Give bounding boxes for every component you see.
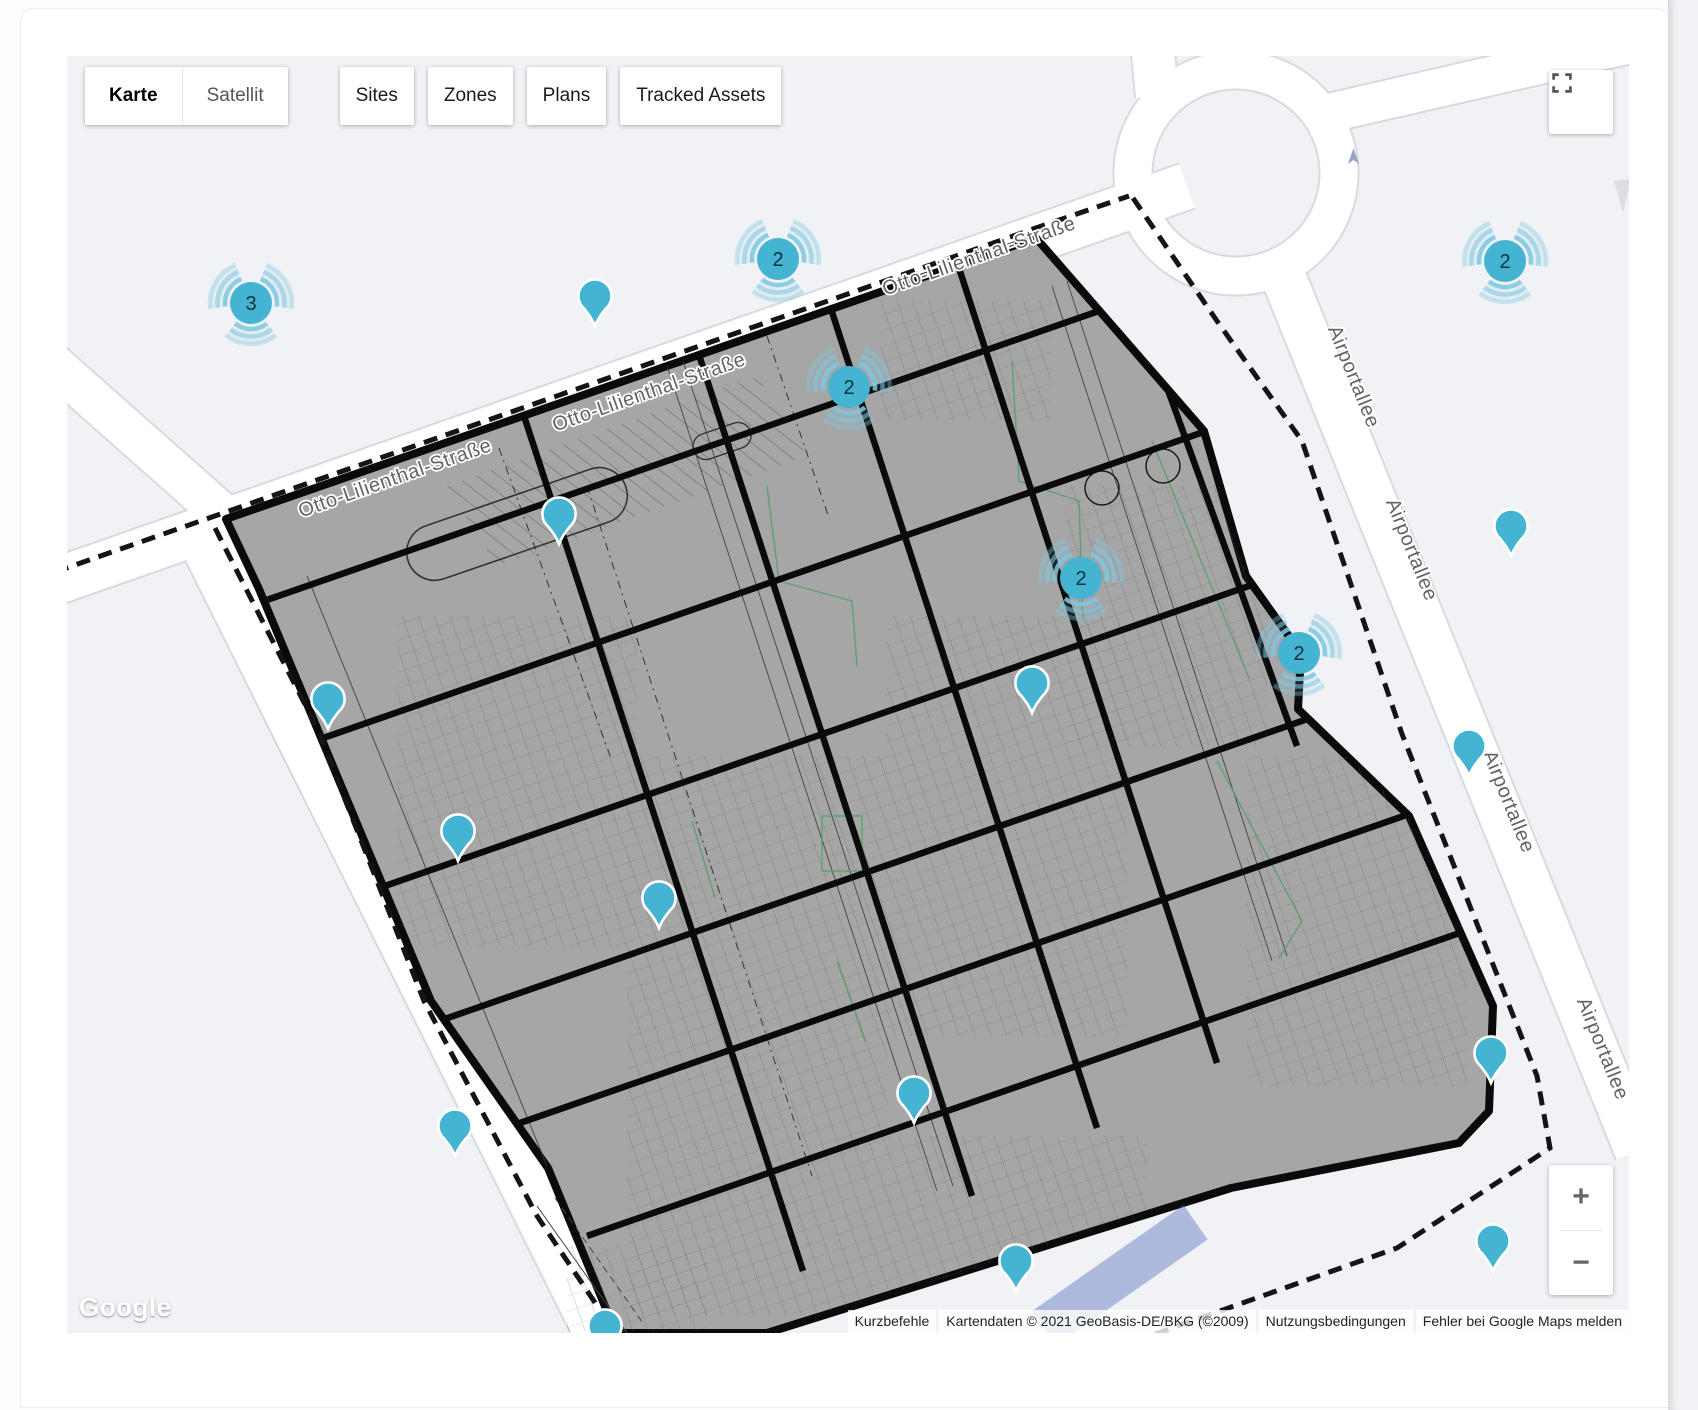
cluster-count: 2 (843, 377, 854, 399)
attribution-bar: Kurzbefehle Kartendaten © 2021 GeoBasis-… (845, 1310, 1629, 1333)
tab-zones[interactable]: Zones (428, 67, 513, 125)
cluster-count: 2 (1293, 643, 1304, 665)
cluster-count: 3 (245, 293, 256, 315)
asset-pin-marker[interactable] (588, 1309, 621, 1333)
report-error-link[interactable]: Fehler bei Google Maps melden (1416, 1310, 1629, 1333)
fullscreen-button[interactable] (1549, 70, 1613, 134)
zoom-control: + − (1549, 1165, 1613, 1295)
right-panel-edge (1668, 0, 1698, 1410)
google-logo[interactable]: Google (79, 1292, 172, 1323)
zoom-in-button[interactable]: + (1549, 1165, 1613, 1230)
zoom-out-button[interactable]: − (1549, 1231, 1613, 1296)
cluster-count: 2 (1499, 251, 1510, 273)
cluster-count: 2 (772, 249, 783, 271)
tab-sites[interactable]: Sites (340, 67, 414, 125)
map-type-karte-button[interactable]: Karte (85, 67, 182, 125)
page: .stlabel{font:20px "Liberation Sans",san… (0, 0, 1698, 1410)
map-data-attribution: Kartendaten © 2021 GeoBasis-DE/BKG (©200… (939, 1310, 1255, 1333)
terms-link[interactable]: Nutzungsbedingungen (1259, 1310, 1413, 1333)
map-svg: .stlabel{font:20px "Liberation Sans",san… (67, 56, 1629, 1333)
keyboard-shortcuts-link[interactable]: Kurzbefehle (848, 1310, 937, 1333)
map-type-satellit-button[interactable]: Satellit (182, 67, 288, 125)
map-toolbar: Karte Satellit Sites Zones Plans Tracked… (85, 67, 781, 125)
cluster-count: 2 (1075, 568, 1086, 590)
content-card: .stlabel{font:20px "Liberation Sans",san… (20, 8, 1670, 1408)
map-type-control: Karte Satellit (85, 67, 288, 125)
tab-plans[interactable]: Plans (527, 67, 607, 125)
tab-tracked-assets[interactable]: Tracked Assets (620, 67, 781, 125)
map-canvas[interactable]: .stlabel{font:20px "Liberation Sans",san… (67, 56, 1629, 1333)
